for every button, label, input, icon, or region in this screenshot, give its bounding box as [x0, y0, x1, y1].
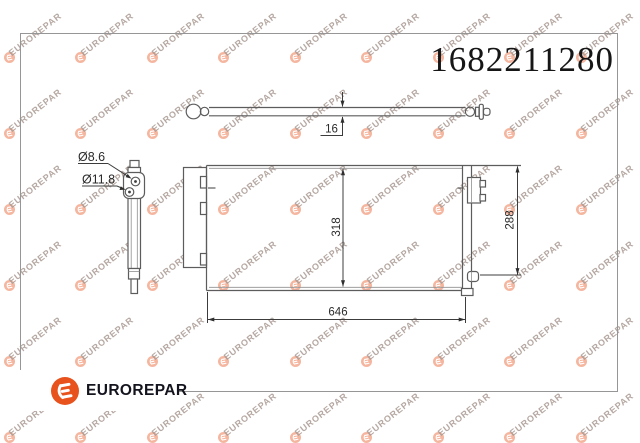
drawing-border	[21, 34, 618, 392]
dimension-core-width-646: 646	[208, 292, 466, 323]
eurorepar-logo-icon	[51, 377, 79, 405]
condenser-front-view	[184, 166, 522, 296]
dim-hole-large-label: Ø11.8	[82, 173, 115, 187]
brand-name: EUROREPAR	[86, 382, 188, 400]
part-number: 1682211280	[430, 42, 614, 77]
dim-hole-small-label: Ø8.6	[78, 150, 105, 164]
dim-288-label: 288	[505, 210, 517, 229]
dimension-right-height-288: 288	[480, 166, 521, 275]
dim-646-label: 646	[328, 307, 347, 319]
condenser-side-view	[124, 161, 145, 294]
dimension-pipe-16: 16	[321, 92, 345, 136]
dim-16-label: 16	[325, 124, 338, 136]
pipe-side-view	[186, 104, 490, 119]
brand-block: EUROREPAR	[20, 370, 178, 411]
dimension-core-height-318: 318	[331, 169, 345, 287]
dim-318-label: 318	[331, 217, 343, 236]
